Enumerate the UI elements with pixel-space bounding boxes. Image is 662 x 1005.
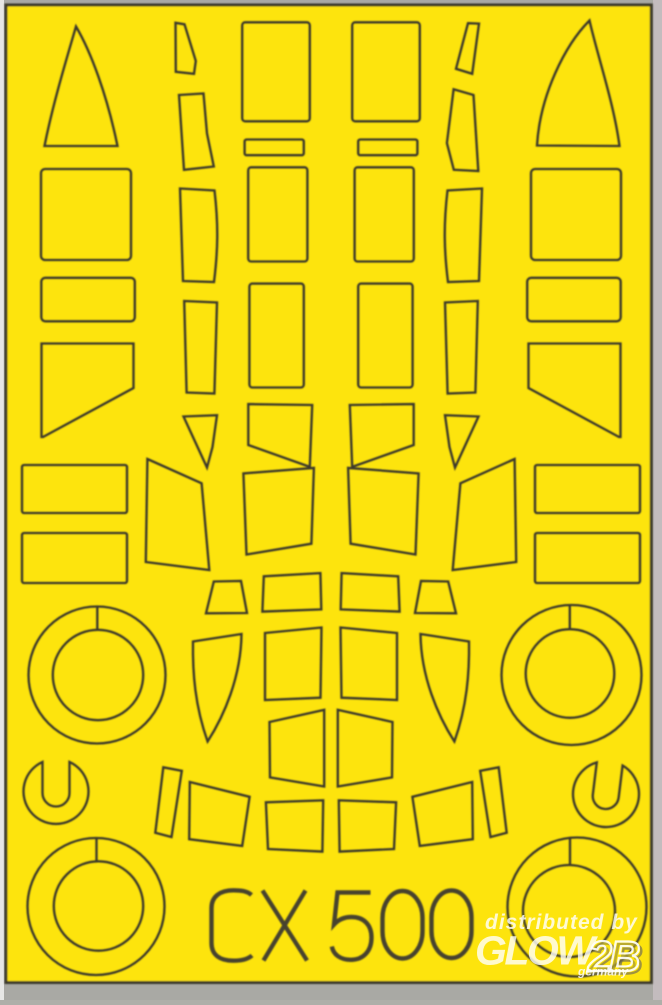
- svg-text:germany: germany: [577, 965, 629, 979]
